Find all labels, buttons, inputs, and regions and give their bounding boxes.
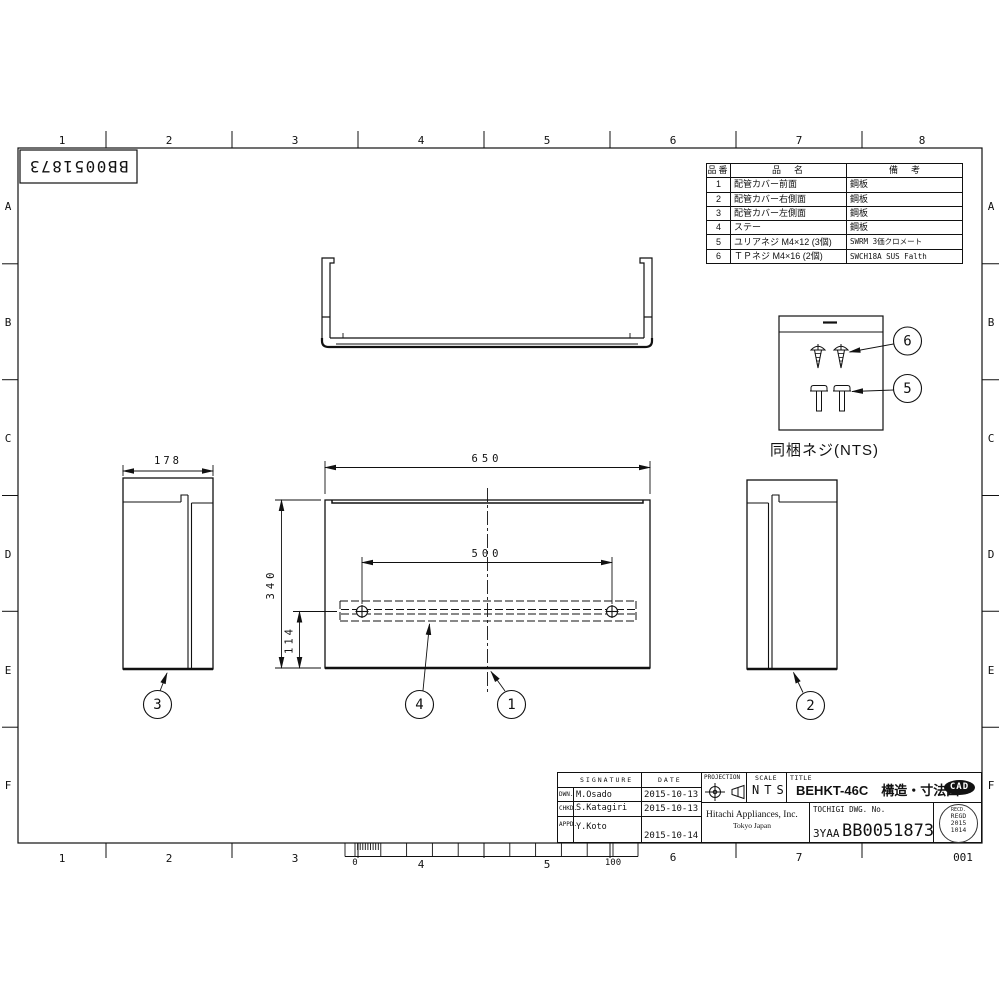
dimensions-front	[275, 461, 650, 668]
parts-table-row: 3 配管カバー左側面 鋼板	[707, 206, 962, 220]
zone-col-label: 5	[544, 134, 551, 147]
zone-col-label: 1	[59, 852, 66, 865]
zone-row-label: E	[988, 664, 995, 677]
zone-row-label: C	[988, 432, 995, 445]
parts-table-row: 5 ユリアネジ M4×12 (3個) SWRM 3価クロメート	[707, 234, 962, 248]
stay-screw-symbol	[356, 605, 619, 618]
role-label-chkd: CHKD.	[559, 806, 577, 812]
balloon-4: 4	[406, 691, 434, 719]
part-remark: 鋼板	[846, 178, 964, 191]
zone-row-label: F	[5, 779, 12, 792]
signature-dwn: M.Osado	[576, 791, 612, 800]
date-dwn: 2015-10-13	[644, 791, 698, 800]
signature-chkd: S.Katagiri	[576, 804, 627, 813]
parts-table-row: 4 ステー 鋼板	[707, 220, 962, 234]
balloon-5: 5	[894, 375, 922, 403]
machine-screw-icon	[833, 386, 851, 412]
role-label-dwn: DWN.	[559, 792, 573, 798]
zone-col-label: 2	[166, 852, 173, 865]
zone-col-label: 1	[59, 134, 66, 147]
scale-label: SCALE	[755, 775, 777, 782]
balloon-6-number: 6	[903, 334, 911, 350]
dimension-texts: 650 500 340 114 178	[154, 453, 502, 654]
drawing-canvas: 1 2 3 4 5 6 7 8 1 2 3 4 5 6 7 A B C D E …	[0, 0, 1000, 1000]
zone-col-label: 3	[292, 852, 299, 865]
part-remark: 鋼板	[846, 207, 964, 220]
top-view	[322, 258, 652, 347]
zone-col-label: 7	[796, 851, 803, 864]
included-screws-box	[779, 316, 883, 430]
zone-row-label: C	[5, 432, 12, 445]
included-screws-caption: 同梱ネジ(NTS)	[770, 439, 879, 460]
part-name: 配管カバー左側面	[730, 207, 846, 220]
balloon-3: 3	[144, 691, 172, 719]
part-remark: 鋼板	[846, 221, 964, 234]
dwg-number: BB0051873	[842, 823, 934, 840]
part-name: 配管カバー前面	[730, 178, 846, 191]
tapping-screw-icon	[811, 344, 825, 368]
parts-table-row: 2 配管カバー右側面 鋼板	[707, 192, 962, 206]
dim-front-height: 340	[265, 569, 277, 600]
balloon-2: 2	[797, 692, 825, 720]
zone-row-label: B	[5, 316, 12, 329]
balloon-1-number: 1	[507, 697, 515, 713]
col-header-item-name: 品 名	[730, 164, 846, 177]
zone-row-label: E	[5, 664, 12, 677]
registration-stamp: RECD. REGD 2015 1014	[939, 804, 978, 843]
part-remark: SWCH18A SUS Falth	[846, 250, 964, 263]
scale-ruler	[345, 843, 638, 857]
part-no: 4	[707, 221, 730, 234]
company-city: Tokyo Japan	[733, 822, 771, 830]
date-header: DATE	[658, 777, 682, 784]
part-name: ユリアネジ M4×12 (3個)	[730, 235, 846, 248]
part-no: 1	[707, 178, 730, 191]
rotated-doc-number: BB0051873	[28, 157, 128, 176]
balloon-6: 6	[894, 327, 922, 355]
ruler-zero-label: 0	[352, 858, 357, 868]
stamp-monthday: 1014	[940, 827, 977, 834]
company-name: Hitachi Appliances, Inc.	[706, 811, 798, 821]
dwg-no-label: TOCHIGI DWG. No.	[813, 806, 885, 814]
zone-row-label: A	[988, 200, 995, 213]
dwg-prefix: 3YAA	[813, 828, 840, 839]
signature-header: SIGNATURE	[580, 777, 633, 784]
part-remark: 鋼板	[846, 193, 964, 206]
balloon-5-number: 5	[903, 381, 911, 397]
parts-table: 品番 品 名 備 考 1 配管カバー前面 鋼板 2 配管カバー右側面 鋼板 3 …	[706, 163, 963, 264]
stay-hidden-outline	[340, 601, 636, 621]
zone-col-label: 4	[418, 134, 425, 147]
part-name: ＴＰネジ M4×16 (2個)	[730, 250, 846, 263]
parts-table-header: 品番 品 名 備 考	[707, 164, 962, 177]
balloon-leaders	[160, 344, 894, 693]
front-view	[325, 488, 650, 692]
zone-col-label: 4	[418, 858, 425, 871]
scale-ruler-labels: 0 100	[352, 858, 621, 868]
zone-row-label: D	[988, 548, 995, 561]
parts-table-row: 6 ＴＰネジ M4×16 (2個) SWCH18A SUS Falth	[707, 249, 962, 263]
part-name: 配管カバー右側面	[730, 193, 846, 206]
machine-screw-icon	[810, 386, 828, 412]
part-remark: SWRM 3価クロメート	[846, 235, 964, 248]
dim-stay-pitch: 500	[472, 548, 503, 560]
part-name: ステー	[730, 221, 846, 234]
zone-row-label: B	[988, 316, 995, 329]
zone-col-label: 8	[919, 134, 926, 147]
sheet-number: 001	[953, 851, 973, 864]
part-no: 5	[707, 235, 730, 248]
right-side-view	[747, 480, 837, 669]
tapping-screw-icon	[834, 344, 848, 368]
zone-row-label: D	[5, 548, 12, 561]
balloon-2-number: 2	[806, 698, 814, 714]
title-block: SIGNATURE DATE DWN. M.Osado 2015-10-13 C…	[557, 772, 982, 843]
cad-mark: CAD	[944, 780, 975, 795]
date-appd: 2015-10-14	[644, 832, 698, 841]
date-chkd: 2015-10-13	[644, 805, 698, 814]
zone-col-label: 7	[796, 134, 803, 147]
dim-side-width: 178	[154, 455, 182, 467]
first-angle-projection-icon	[703, 782, 747, 802]
col-header-remarks: 備 考	[846, 164, 964, 177]
rotated-doc-number-box: BB0051873	[20, 150, 137, 183]
part-no: 2	[707, 193, 730, 206]
balloons: 1 2 3 4 5 6	[144, 327, 922, 720]
scale-value: NTS	[752, 784, 789, 796]
balloon-4-number: 4	[415, 697, 423, 713]
part-no: 3	[707, 207, 730, 220]
ruler-hundred-label: 100	[605, 858, 621, 868]
zone-row-label: F	[988, 779, 995, 792]
projection-label: PROJECTION	[704, 775, 740, 781]
role-label-appd: APPD.	[559, 822, 577, 828]
zone-col-label: 6	[670, 851, 677, 864]
zone-row-label: A	[5, 200, 12, 213]
dim-stay-height: 114	[284, 626, 296, 654]
col-header-item-no: 品番	[707, 164, 730, 177]
part-no: 6	[707, 250, 730, 263]
drawing-title: BEHKT-46C 構造・寸法図	[796, 784, 959, 797]
balloon-1: 1	[498, 691, 526, 719]
parts-table-row: 1 配管カバー前面 鋼板	[707, 177, 962, 191]
zone-col-label: 2	[166, 134, 173, 147]
balloon-3-number: 3	[153, 697, 161, 713]
zone-col-label: 5	[544, 858, 551, 871]
zone-col-label: 3	[292, 134, 299, 147]
left-side-view	[123, 465, 213, 669]
signature-appd: Y.Koto	[576, 823, 607, 832]
title-label: TITLE	[790, 775, 812, 782]
dim-front-width: 650	[472, 453, 503, 465]
zone-col-label: 6	[670, 134, 677, 147]
